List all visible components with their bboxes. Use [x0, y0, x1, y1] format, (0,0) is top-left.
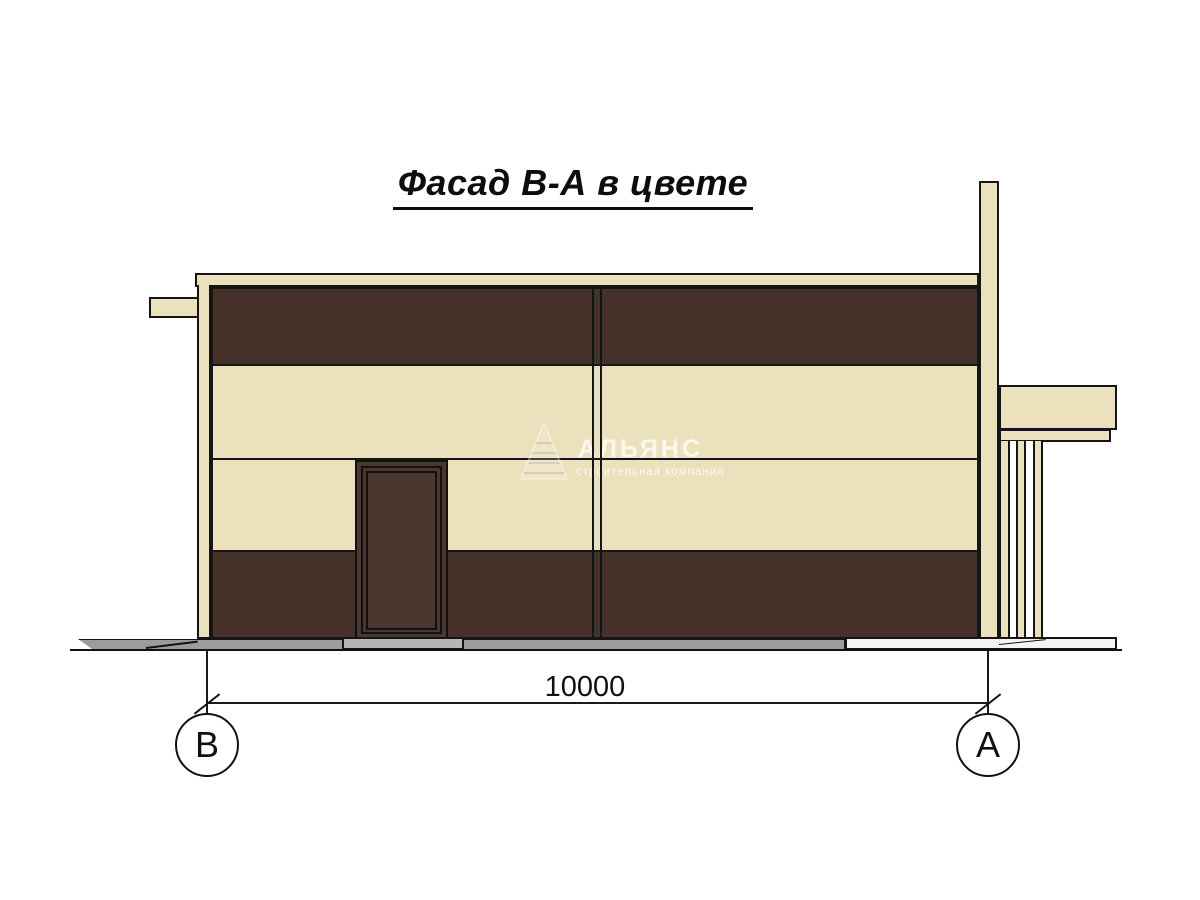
- side-canopy: [999, 385, 1117, 430]
- axis-letter-left: В: [195, 724, 219, 766]
- slat: [1008, 441, 1016, 639]
- ground-line: [70, 649, 1122, 651]
- axis-marker-A: А: [956, 713, 1020, 777]
- right-pylon: [979, 181, 999, 639]
- slat: [1024, 441, 1033, 639]
- door-frame-inner: [366, 471, 437, 630]
- slat: [1033, 441, 1043, 639]
- dimension-label: 10000: [500, 671, 670, 704]
- axis-marker-B: В: [175, 713, 239, 777]
- facade-center-joint: [592, 287, 602, 639]
- slat: [999, 441, 1008, 639]
- left-corner-trim: [197, 285, 211, 639]
- slat-screen: [999, 441, 1043, 639]
- entrance-door: [355, 460, 448, 639]
- slat: [1016, 441, 1024, 639]
- left-projecting-beam: [149, 297, 199, 318]
- facade-drawing-canvas: Фасад В-А в цвете АЛЬЯНС строительная ко…: [0, 0, 1200, 900]
- roof-parapet-band: [195, 273, 979, 287]
- dim-extension-line-left: [206, 651, 208, 717]
- axis-letter-right: А: [976, 724, 1000, 766]
- drawing-title-wrap: Фасад В-А в цвете: [373, 162, 773, 210]
- dim-extension-line-right: [987, 651, 989, 716]
- drawing-title: Фасад В-А в цвете: [393, 162, 753, 210]
